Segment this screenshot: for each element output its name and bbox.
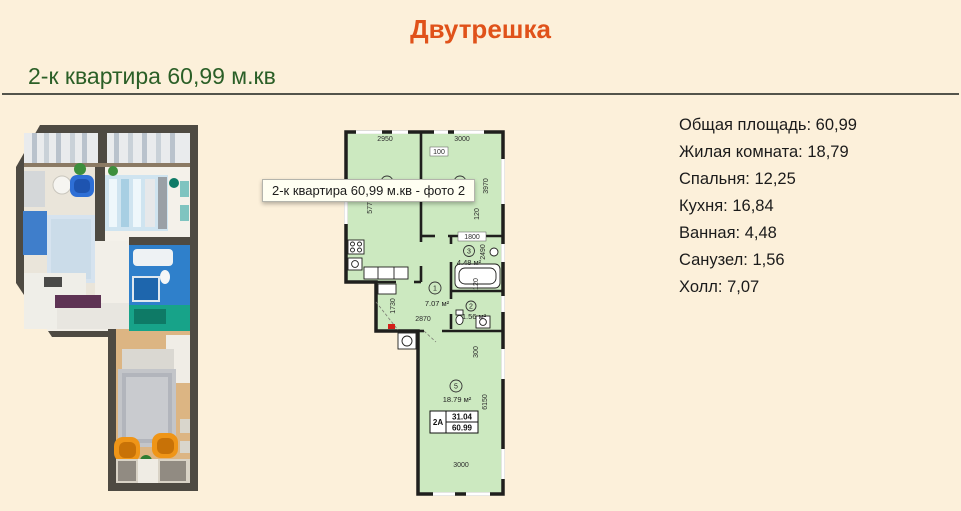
svg-text:4.48 м²: 4.48 м² <box>457 258 482 267</box>
entry-marker <box>388 324 395 329</box>
svg-text:3: 3 <box>467 249 471 256</box>
page-title: Двутрешка <box>0 14 961 45</box>
apartment-type-box: 2A 31.04 60.99 <box>430 411 478 433</box>
svg-text:31.04: 31.04 <box>452 413 473 422</box>
svg-text:60.99: 60.99 <box>452 424 473 433</box>
svg-text:2: 2 <box>469 304 473 311</box>
detail-row-living: Жилая комната: 18,79 <box>679 139 857 166</box>
apartment-subtitle: 2-к квартира 60,99 м.кв <box>28 63 276 90</box>
dim-room5-offset: 300 <box>473 346 480 358</box>
dim-bath-offset: 120 <box>473 278 480 290</box>
dim-room5-width: 3000 <box>453 462 469 469</box>
detail-row-kitchen: Кухня: 16,84 <box>679 193 857 220</box>
svg-text:2A: 2A <box>433 418 443 427</box>
detail-row-total: Общая площадь: 60,99 <box>679 112 857 139</box>
svg-text:1.56 м²: 1.56 м² <box>462 312 487 321</box>
dim-bedroom-offset: 120 <box>474 208 481 220</box>
detail-row-wc: Санузел: 1,56 <box>679 247 857 274</box>
dim-top-offset: 100 <box>433 149 445 156</box>
svg-text:5: 5 <box>454 384 458 391</box>
area-details-list: Общая площадь: 60,99 Жилая комната: 18,7… <box>679 112 857 301</box>
detail-row-bedroom: Спальня: 12,25 <box>679 166 857 193</box>
svg-text:7.07 м²: 7.07 м² <box>425 299 450 308</box>
apartment-3d-render-image <box>14 123 200 493</box>
divider-rule <box>2 93 959 95</box>
detail-row-hall: Холл: 7,07 <box>679 274 857 301</box>
dim-bedroom-height: 3970 <box>483 178 490 194</box>
tooltip: 2-к квартира 60,99 м.кв - фото 2 <box>262 179 475 202</box>
apartment-3d-render-photo[interactable] <box>14 123 200 493</box>
dim-bedroom-width: 3000 <box>454 136 470 143</box>
svg-text:1: 1 <box>433 286 437 293</box>
dim-room5-height: 6150 <box>482 394 489 410</box>
dim-kitchen-width: 2950 <box>377 136 393 143</box>
dim-bath-width: 1800 <box>464 234 480 241</box>
svg-text:18.79 м²: 18.79 м² <box>443 395 472 404</box>
dim-hall-width: 2870 <box>415 316 431 323</box>
detail-row-bath: Ванная: 4,48 <box>679 220 857 247</box>
dim-hall-height: 1730 <box>390 298 397 314</box>
